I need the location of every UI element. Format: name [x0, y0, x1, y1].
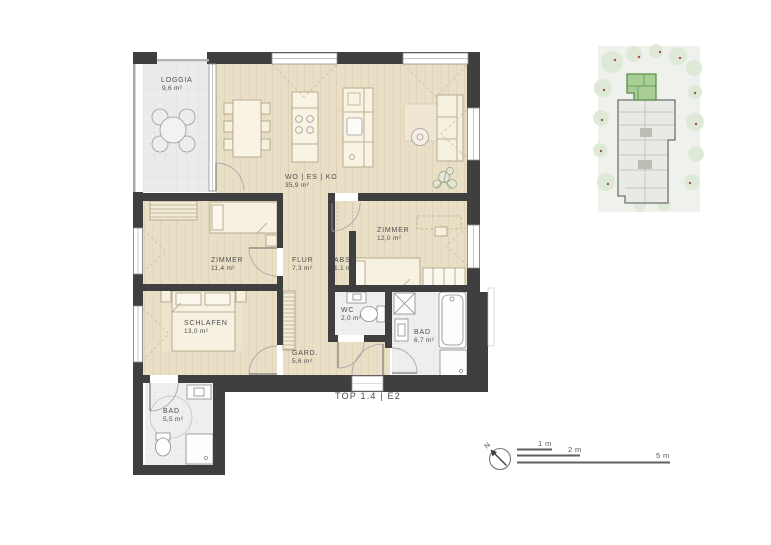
svg-text:WO | ES | KO: WO | ES | KO: [285, 174, 338, 181]
svg-text:SCHLAFEN: SCHLAFEN: [184, 320, 228, 327]
bad1-sink: [395, 319, 408, 341]
loggia-top-rail: [157, 59, 209, 62]
wardrobe-zimmer1: [150, 201, 197, 220]
dining-chair: [261, 121, 270, 132]
svg-text:ZIMMER: ZIMMER: [211, 257, 243, 264]
svg-text:1,1 m²: 1,1 m²: [334, 265, 355, 272]
sofa: [437, 95, 463, 161]
exterior-ledge: [488, 288, 494, 346]
svg-text:2,0 m²: 2,0 m²: [341, 315, 362, 322]
svg-text:6,7 m²: 6,7 m²: [414, 337, 435, 344]
window-living-top-left: [272, 53, 337, 64]
site-plan: [593, 44, 704, 212]
loggia-round-table: [160, 117, 186, 143]
svg-text:BAD: BAD: [163, 408, 180, 415]
scale-label-2m: 2 m: [568, 445, 582, 454]
coffee-table: [412, 129, 429, 146]
bad1-cabinet: [440, 350, 467, 376]
svg-text:5,5 m²: 5,5 m²: [163, 416, 184, 423]
loggia-side-rail: [133, 64, 136, 192]
dining-chair: [224, 121, 233, 132]
shower: [186, 434, 213, 464]
svg-text:BAD: BAD: [414, 329, 431, 336]
bad2-sink: [187, 385, 211, 399]
window-zimmer2-right: [468, 225, 480, 268]
kitchen-island: [292, 92, 318, 162]
floor-plan-drawing: LOGGIA 9,6 m² WO | ES | KO 35,9 m² ZIMME…: [0, 0, 771, 545]
svg-text:5,6 m²: 5,6 m²: [292, 358, 313, 365]
bathtub: [439, 292, 466, 348]
scale-bar: 1 m 2 m 5 m: [517, 439, 670, 463]
svg-text:ZIMMER: ZIMMER: [377, 227, 409, 234]
window-schlafen-left: [134, 306, 143, 362]
loggia-glass-front: [209, 64, 216, 191]
kitchen-sink: [347, 118, 362, 135]
dining-table-set: [224, 100, 270, 157]
wardrobe-gard: [283, 291, 295, 350]
unit-title: TOP 1.4 | E2: [335, 391, 401, 401]
nightstand-schlafen: [161, 290, 171, 302]
dining-chair: [261, 103, 270, 114]
nightstand-zimmer1: [266, 235, 277, 246]
north-compass-icon: N: [484, 442, 511, 470]
window-living-top-right: [403, 53, 468, 64]
svg-text:12,0 m²: 12,0 m²: [377, 235, 402, 242]
dining-chair: [224, 139, 233, 150]
dining-chair: [261, 139, 270, 150]
bed-zimmer2: [352, 258, 420, 289]
window-zimmer1-left: [134, 228, 143, 274]
site-plan-building: [618, 100, 675, 203]
bad2-toilet: [156, 433, 171, 456]
floorplan-sheet: LOGGIA 9,6 m² WO | ES | KO 35,9 m² ZIMME…: [0, 0, 771, 545]
svg-text:35,9 m²: 35,9 m²: [285, 182, 310, 189]
svg-text:LOGGIA: LOGGIA: [161, 77, 193, 84]
room-label-abstell: ABST. 1,1 m²: [334, 257, 357, 272]
svg-text:WC: WC: [341, 307, 354, 314]
svg-text:13,0 m²: 13,0 m²: [184, 328, 209, 335]
wc-sink: [347, 292, 366, 303]
entrance-threshold: [352, 376, 383, 391]
svg-text:FLUR: FLUR: [292, 257, 313, 264]
window-living-right: [468, 108, 480, 160]
wc-toilet: [361, 306, 386, 322]
svg-text:ABST.: ABST.: [334, 257, 357, 264]
svg-text:7,3 m²: 7,3 m²: [292, 265, 313, 272]
north-label: N: [484, 442, 492, 451]
room-label-flur: FLUR 7,3 m²: [292, 257, 313, 272]
kitchen-counter: [343, 88, 373, 167]
svg-text:GARD.: GARD.: [292, 350, 318, 357]
gard-floor: [328, 342, 390, 375]
svg-text:11,4 m²: 11,4 m²: [211, 265, 235, 272]
nightstand-schlafen: [236, 290, 246, 302]
washing-machine: [394, 293, 415, 314]
dining-table: [233, 100, 261, 157]
bed-zimmer1: [210, 202, 277, 233]
scale-label-1m: 1 m: [538, 439, 552, 448]
dining-chair: [224, 103, 233, 114]
scale-label-5m: 5 m: [656, 451, 670, 460]
svg-text:9,6 m²: 9,6 m²: [162, 85, 183, 92]
